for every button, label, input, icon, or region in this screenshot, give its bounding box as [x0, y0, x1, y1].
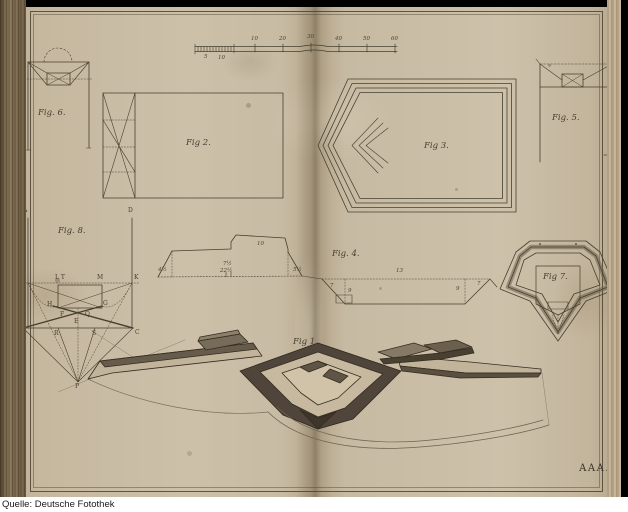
fig3-drawing	[318, 79, 516, 212]
fig4-dim-right: 5½	[293, 267, 302, 273]
photo-frame-top	[26, 0, 628, 7]
scale-tick-50: 50	[363, 36, 370, 42]
scale-tick-5-lower: 5	[204, 54, 208, 60]
source-caption: Quelle: Deutsche Fotothek	[0, 499, 114, 510]
fig8-letter-lt: L T	[55, 274, 65, 281]
fig4-drawing	[158, 235, 497, 304]
fig8-letter-p: P	[75, 383, 79, 390]
fig4-dim-ditch-inner-left: 9	[348, 288, 352, 294]
book-spine-page-edges	[0, 0, 26, 497]
fig8-letter-k: K	[134, 274, 138, 281]
fig8-letter-q: Q	[85, 311, 90, 318]
fig4-dim-ditch-left: 7	[330, 283, 334, 289]
fig1-label: Fig 1.	[293, 337, 318, 347]
fig4-dim-mid: 22½	[220, 268, 232, 274]
fig8-letter-e: E	[74, 318, 78, 325]
fig8-letter-r: R	[54, 330, 59, 337]
fig8-letter-g: G	[103, 300, 108, 307]
plate-signature: AAA.	[558, 463, 610, 474]
fig4-dim-top: 10	[257, 241, 264, 247]
fig2-label: Fig 2.	[186, 138, 211, 148]
fig1-fort-drawing	[58, 330, 549, 448]
caption-bar: Quelle: Deutsche Fotothek	[0, 497, 628, 512]
fig8-label: Fig. 8.	[58, 226, 86, 236]
scale-tick-40: 40	[335, 36, 342, 42]
fig3-label: Fig 3.	[424, 141, 449, 151]
scale-tick-20: 20	[279, 36, 286, 42]
fig6-label: Fig. 6.	[38, 108, 66, 118]
fig8-letter-h: H	[47, 301, 52, 308]
scale-tick-60: 60	[391, 36, 398, 42]
fig8-drawing	[20, 218, 140, 382]
fig7-drawing	[500, 241, 616, 341]
fig5-label: Fig. 5.	[552, 113, 580, 123]
fig4-dim-ditch-top: 13	[396, 268, 403, 274]
fig4-dim-mid-upper: 7½	[223, 261, 232, 267]
fig7-label: Fig 7.	[543, 272, 568, 282]
fig8-letter-d: D	[128, 207, 133, 214]
fig4-label: Fig. 4.	[332, 249, 360, 259]
fig8-letter-s: S	[92, 330, 96, 337]
photo-frame-right	[621, 0, 628, 497]
scale-bar-drawing	[195, 43, 397, 54]
scale-tick-10: 10	[251, 36, 258, 42]
fig8-letter-f: F	[60, 311, 64, 318]
scale-tick-10-lower: 10	[218, 55, 225, 61]
fig4-dim-ditch-inner-right: 9	[456, 286, 460, 292]
scale-tick-30: 30	[307, 34, 314, 40]
book-right-page-edges	[607, 0, 621, 497]
book-photograph: Fig. 6. Fig 2. Fig 3. Fig. 5. Fig. 8. Fi…	[0, 0, 628, 512]
fig6-drawing	[24, 48, 93, 150]
plate-drawing	[0, 0, 628, 512]
fig5-drawing	[536, 58, 618, 162]
fig4-dim-left: 4½	[158, 267, 167, 273]
fig4-dim-ditch-right: 7	[477, 281, 481, 287]
fig8-letter-m: M	[97, 274, 103, 281]
fig8-letter-c: C	[135, 329, 140, 336]
